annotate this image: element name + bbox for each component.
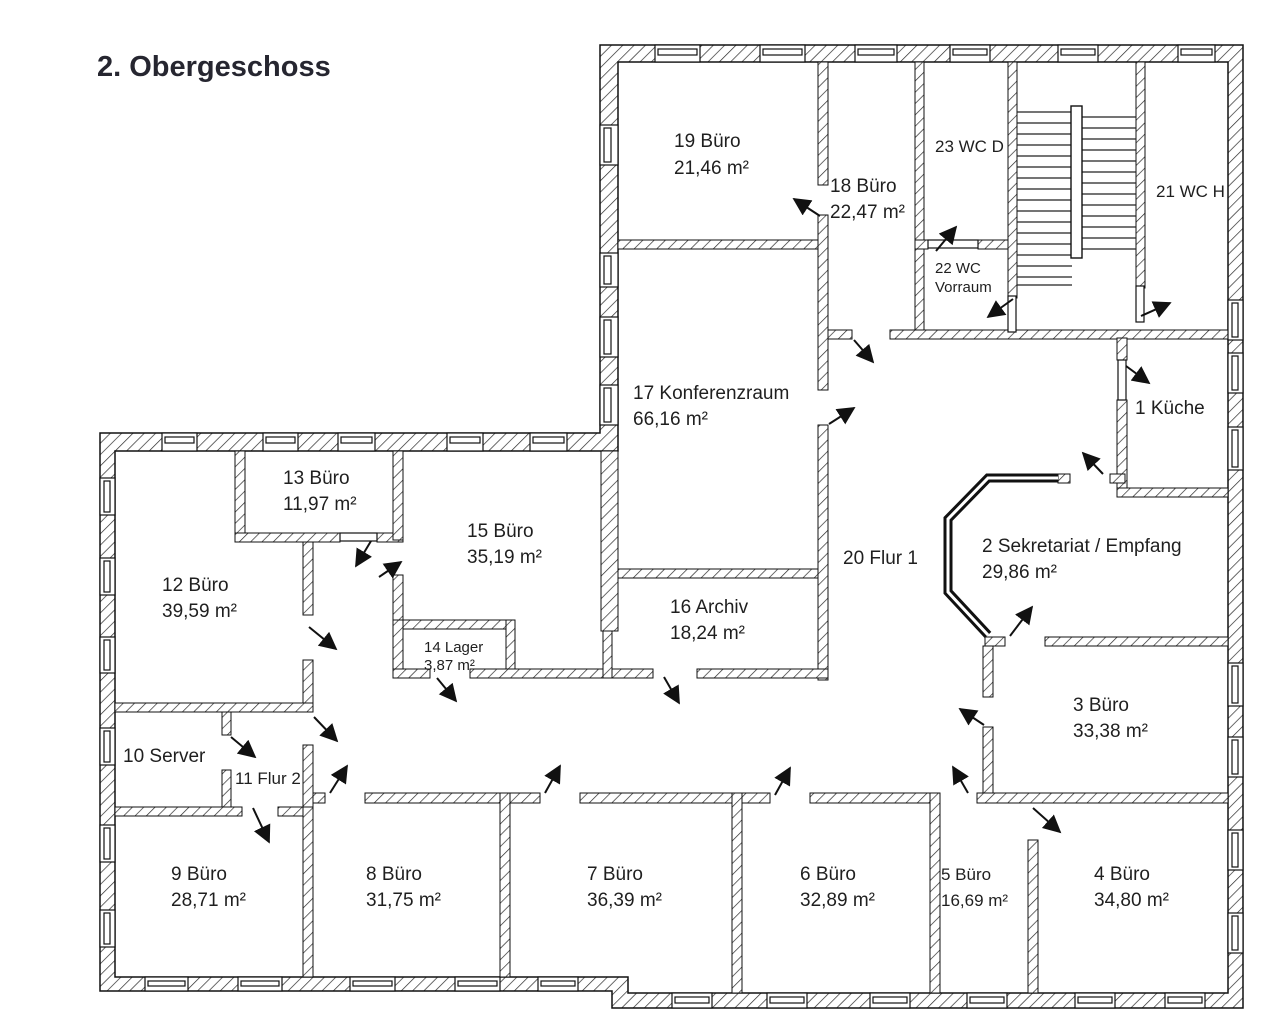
- room-label-15-buero: 15 Büro35,19 m²: [467, 521, 542, 568]
- door-arrows: [231, 199, 1170, 842]
- room-label-4-buero: 4 Büro34,80 m²: [1094, 864, 1169, 911]
- room-label-20-flur-1: 20 Flur 1: [843, 548, 918, 569]
- room-label-12-buero: 12 Büro39,59 m²: [162, 575, 237, 622]
- room-label-14-lager: 14 Lager3,87 m²: [424, 639, 483, 674]
- room-label-18-buero: 18 Büro22,47 m²: [830, 176, 905, 223]
- room-label-21-wc-h: 21 WC H: [1156, 182, 1225, 201]
- room-label-22-wc-vorraum: 22 WCVorraum: [935, 260, 992, 296]
- floor-plan-page: 2. Obergeschoss 19 Büro21,46 m² 18 Büro2…: [0, 0, 1279, 1024]
- room-label-13-buero: 13 Büro11,97 m²: [283, 468, 357, 515]
- room-label-19-buero: 19 Büro21,46 m²: [674, 131, 749, 179]
- floor-plan-svg: 2. Obergeschoss 19 Büro21,46 m² 18 Büro2…: [0, 0, 1279, 1024]
- room-label-5-buero: 5 Büro16,69 m²: [941, 865, 1008, 910]
- room-label-9-buero: 9 Büro28,71 m²: [171, 864, 246, 911]
- room-label-11-flur-2: 11 Flur 2: [235, 769, 301, 788]
- stairs: [1017, 106, 1136, 285]
- room-label-10-server: 10 Server: [123, 746, 206, 767]
- room-label-1-kueche: 1 Küche: [1135, 398, 1205, 419]
- page-title: 2. Obergeschoss: [97, 51, 331, 83]
- room-label-17-konferenzraum: 17 Konferenzraum66,16 m²: [633, 383, 789, 430]
- stair-divider: [1071, 106, 1082, 258]
- room-label-7-buero: 7 Büro36,39 m²: [587, 864, 662, 911]
- room-label-6-buero: 6 Büro32,89 m²: [800, 864, 875, 911]
- room-label-16-archiv: 16 Archiv18,24 m²: [670, 597, 749, 644]
- room-label-8-buero: 8 Büro31,75 m²: [366, 864, 441, 911]
- room-label-2-sekretariat: 2 Sekretariat / Empfang29,86 m²: [982, 536, 1182, 583]
- room-label-23-wc-d: 23 WC D: [935, 137, 1004, 156]
- room-label-3-buero: 3 Büro33,38 m²: [1073, 695, 1148, 742]
- interior-walls: [115, 62, 1228, 993]
